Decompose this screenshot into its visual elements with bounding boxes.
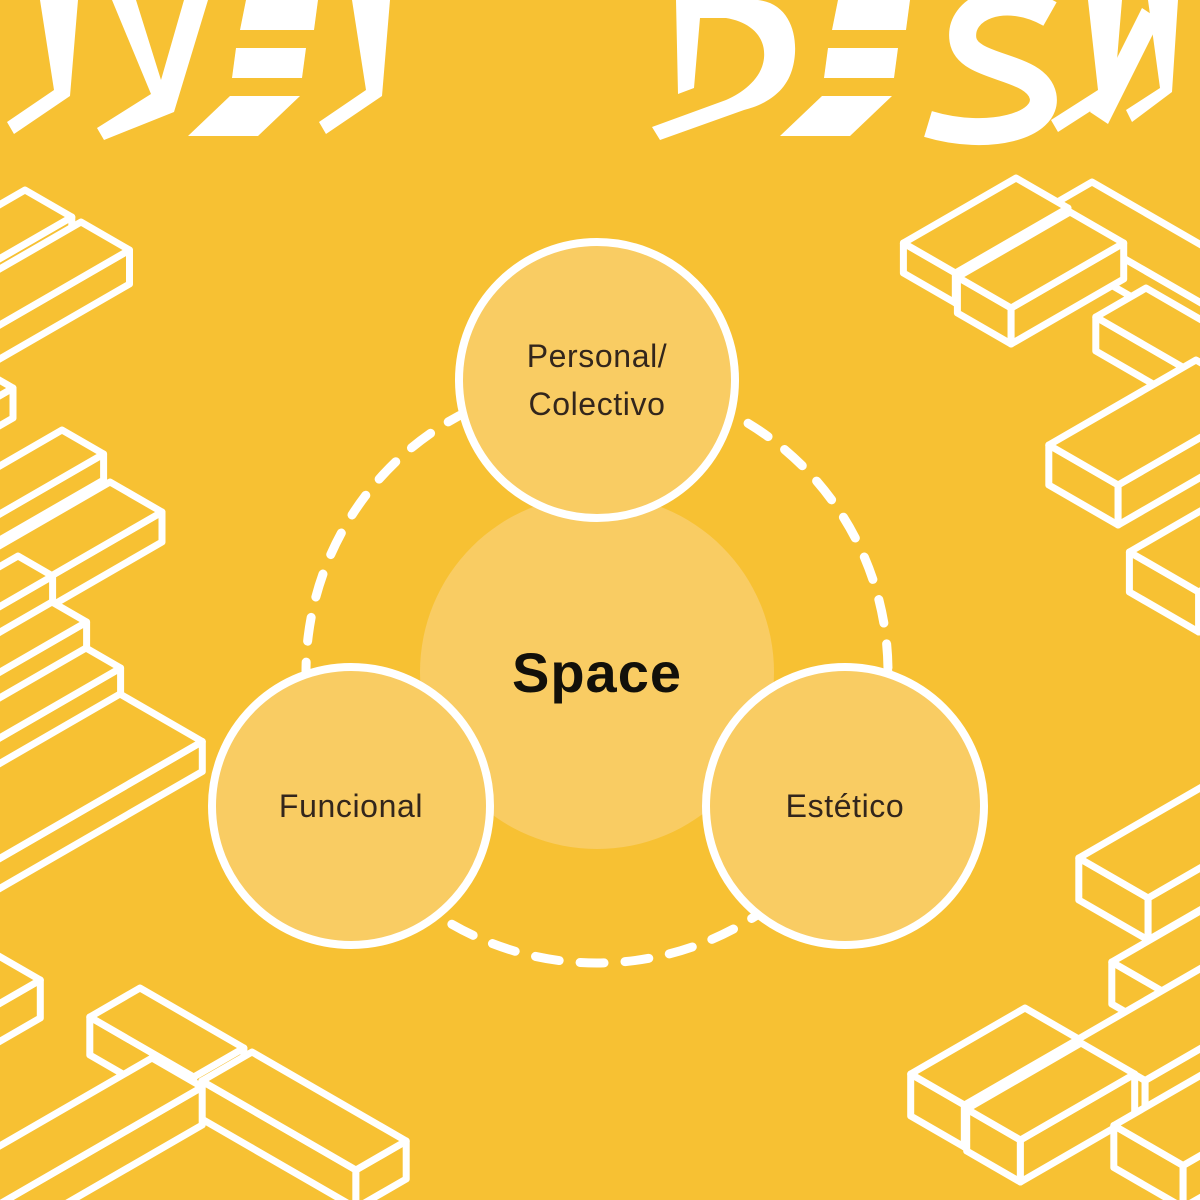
node-circle-funcional: Funcional <box>208 663 494 949</box>
node-circle-estetico: Estético <box>702 663 988 949</box>
node-label-funcional: Funcional <box>279 782 423 830</box>
header-wordmark-left <box>7 0 390 140</box>
isometric-blocks-bottom-left <box>0 925 406 1200</box>
node-circle-personal-colectivo: Personal/ Colectivo <box>455 238 739 522</box>
node-label-line: Colectivo <box>527 380 668 428</box>
node-label-personal-colectivo: Personal/ Colectivo <box>527 332 668 428</box>
poster-canvas: { "header": { "left_fragment": "IVEL", "… <box>0 0 1200 1200</box>
isometric-blocks-top-right <box>903 178 1200 632</box>
node-label-estetico: Estético <box>786 782 905 830</box>
header-wordmark-right <box>652 0 1178 140</box>
node-label-line: Personal/ <box>527 332 668 380</box>
center-label: Space <box>512 640 682 705</box>
isometric-stairs-left <box>0 430 202 922</box>
